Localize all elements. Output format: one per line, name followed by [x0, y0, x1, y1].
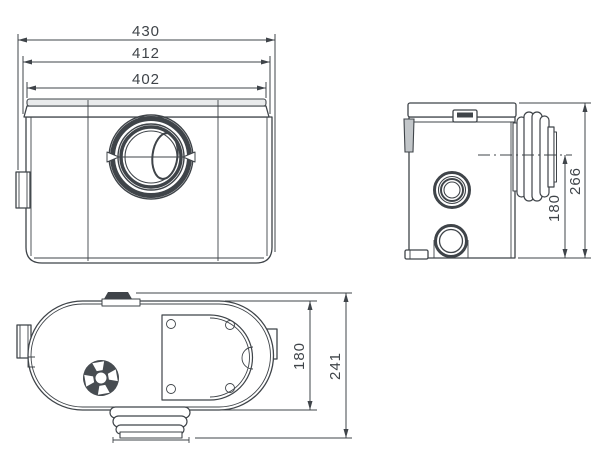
front-side-connector: [16, 172, 30, 208]
dim-label-241: 241: [327, 352, 344, 380]
outlet-bellows: [513, 112, 557, 201]
side-bottom-boss: [434, 226, 468, 259]
dim-label-412: 412: [132, 45, 160, 62]
inlet-port: [107, 115, 195, 199]
front-view: 430 412 402: [16, 23, 275, 263]
dim-label-266: 266: [567, 167, 584, 195]
technical-drawing-page: 430 412 402: [0, 0, 600, 459]
dim-label-180-side: 180: [546, 194, 563, 222]
dim-label-180-top: 180: [291, 342, 308, 370]
side-inlet-boss: [435, 173, 470, 208]
top-view: 180 241: [17, 292, 352, 443]
dimension-top-width: 402: [27, 71, 266, 98]
side-foot: [405, 250, 428, 259]
lid-clip: [450, 110, 480, 122]
top-bellows: [110, 407, 190, 443]
dim-label-430: 430: [132, 23, 160, 40]
dim-label-402: 402: [132, 71, 160, 88]
technical-drawing: 430 412 402: [0, 0, 600, 459]
side-body: [404, 103, 516, 259]
vent-tab: [404, 119, 414, 152]
top-body: [28, 301, 273, 410]
side-view: 180 266: [404, 103, 591, 259]
top-clip: [102, 292, 140, 306]
front-lid-rim: [27, 99, 266, 106]
